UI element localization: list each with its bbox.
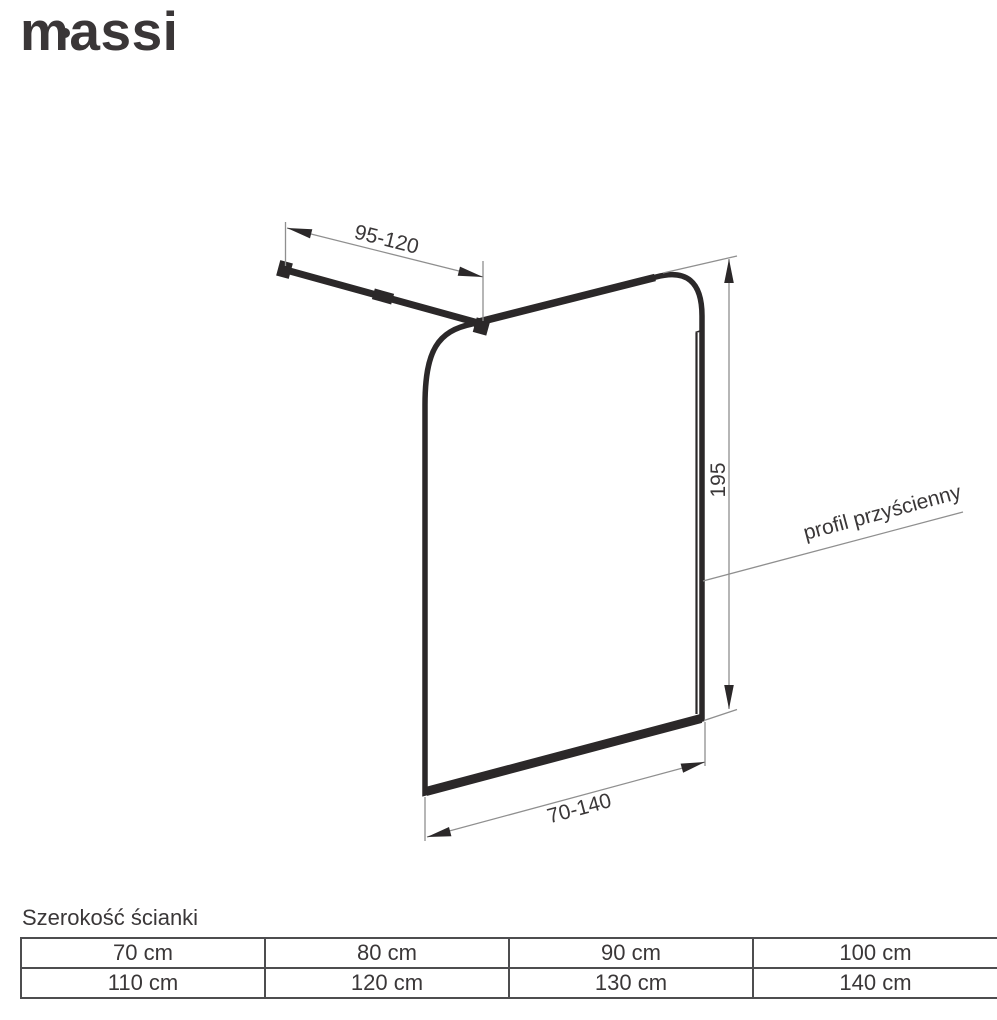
product-dimension-sheet: massi 95-120 195 <box>0 0 997 1020</box>
dimension-arrowhead <box>681 762 705 773</box>
table-row: 70 cm 80 cm 90 cm 100 cm <box>21 938 997 968</box>
shower-screen-technical-drawing: 95-120 195 70-140 profil przyścienny <box>0 0 997 1020</box>
dimension-arrowhead <box>724 259 734 283</box>
dimension-arrowhead <box>287 228 312 238</box>
wall-bracket <box>276 260 293 279</box>
table-cell: 140 cm <box>753 968 997 998</box>
table-cell: 110 cm <box>21 968 265 998</box>
wall-width-table: 70 cm 80 cm 90 cm 100 cm 110 cm 120 cm 1… <box>20 937 997 999</box>
table-cell: 100 cm <box>753 938 997 968</box>
dimension-arrowhead <box>458 267 483 277</box>
table-cell: 70 cm <box>21 938 265 968</box>
table-cell: 90 cm <box>509 938 753 968</box>
dimension-label-height: 195 <box>707 462 730 497</box>
extension-line <box>663 256 737 273</box>
dimension-label-width: 70-140 <box>545 789 614 828</box>
size-table-title: Szerokość ścianki <box>22 905 198 931</box>
wall-profile-label: profil przyścienny <box>801 480 964 544</box>
dimension-arrowhead <box>724 685 734 709</box>
dimension-arrowhead <box>427 827 451 837</box>
extension-line <box>704 710 737 721</box>
table-cell: 120 cm <box>265 968 509 998</box>
arm-mid-connector <box>372 289 394 305</box>
table-row: 110 cm 120 cm 130 cm 140 cm <box>21 968 997 998</box>
table-cell: 130 cm <box>509 968 753 998</box>
table-cell: 80 cm <box>265 938 509 968</box>
glass-panel-outline <box>425 275 702 793</box>
